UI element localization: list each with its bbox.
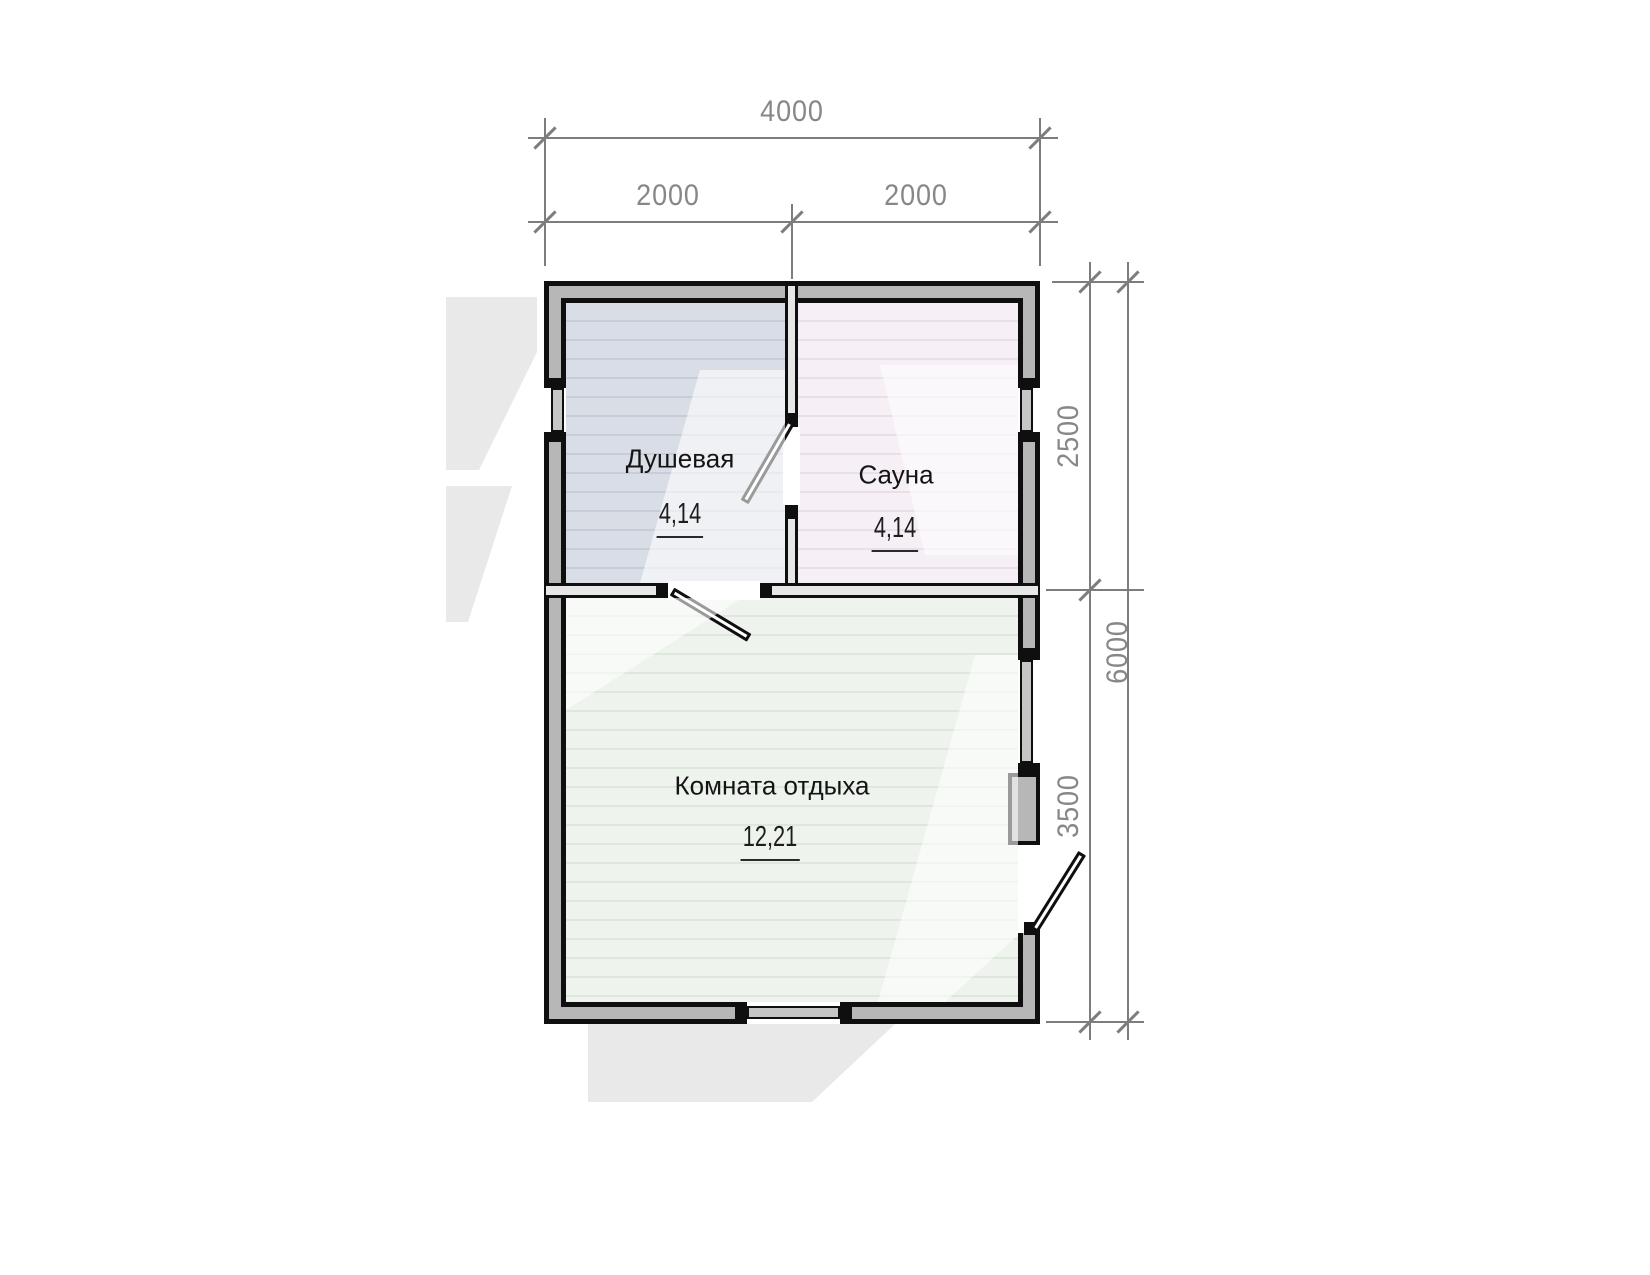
floor-plan-canvas: Душевая 4,14 Сауна 4,14 Комната отдыха 1… — [0, 0, 1650, 1275]
window-cap — [840, 1002, 852, 1024]
window-cap — [544, 378, 566, 388]
door-jamb — [760, 583, 772, 598]
room-area-sauna: 4,14 — [872, 512, 919, 552]
room-label-lounge: Комната отдыха — [675, 771, 870, 802]
room-area-lounge: 12,21 — [741, 821, 800, 861]
room-label-shower: Душевая — [626, 444, 735, 475]
dim-line-right-parts — [1089, 262, 1091, 1040]
window-bottom — [747, 1006, 840, 1019]
room-label-sauna: Сауна — [858, 460, 933, 491]
window-left — [551, 388, 564, 432]
dim-value-right-upper: 2500 — [1052, 404, 1086, 468]
window-lounge — [1020, 660, 1033, 763]
window-cap — [1018, 378, 1040, 388]
door-jamb — [785, 505, 798, 519]
partition-wall-middle — [546, 583, 1038, 598]
window-cap — [1018, 432, 1040, 442]
dim-value-right-total: 6000 — [1101, 620, 1135, 684]
dim-line-top-total — [528, 137, 1058, 139]
dim-value-right-lower: 3500 — [1052, 774, 1086, 838]
door-jamb — [656, 583, 668, 598]
extension-line — [791, 204, 793, 279]
dim-value-top-left: 2000 — [636, 179, 700, 213]
dim-value-top-total: 4000 — [760, 95, 824, 129]
window-cap — [1018, 648, 1040, 660]
building-outline — [544, 281, 1040, 1024]
dim-value-top-right: 2000 — [884, 179, 948, 213]
window-cap — [544, 432, 566, 442]
room-area-shower: 4,14 — [657, 498, 704, 538]
window-sauna — [1020, 388, 1033, 432]
extension-line — [1046, 589, 1144, 591]
window-cap — [735, 1002, 747, 1024]
